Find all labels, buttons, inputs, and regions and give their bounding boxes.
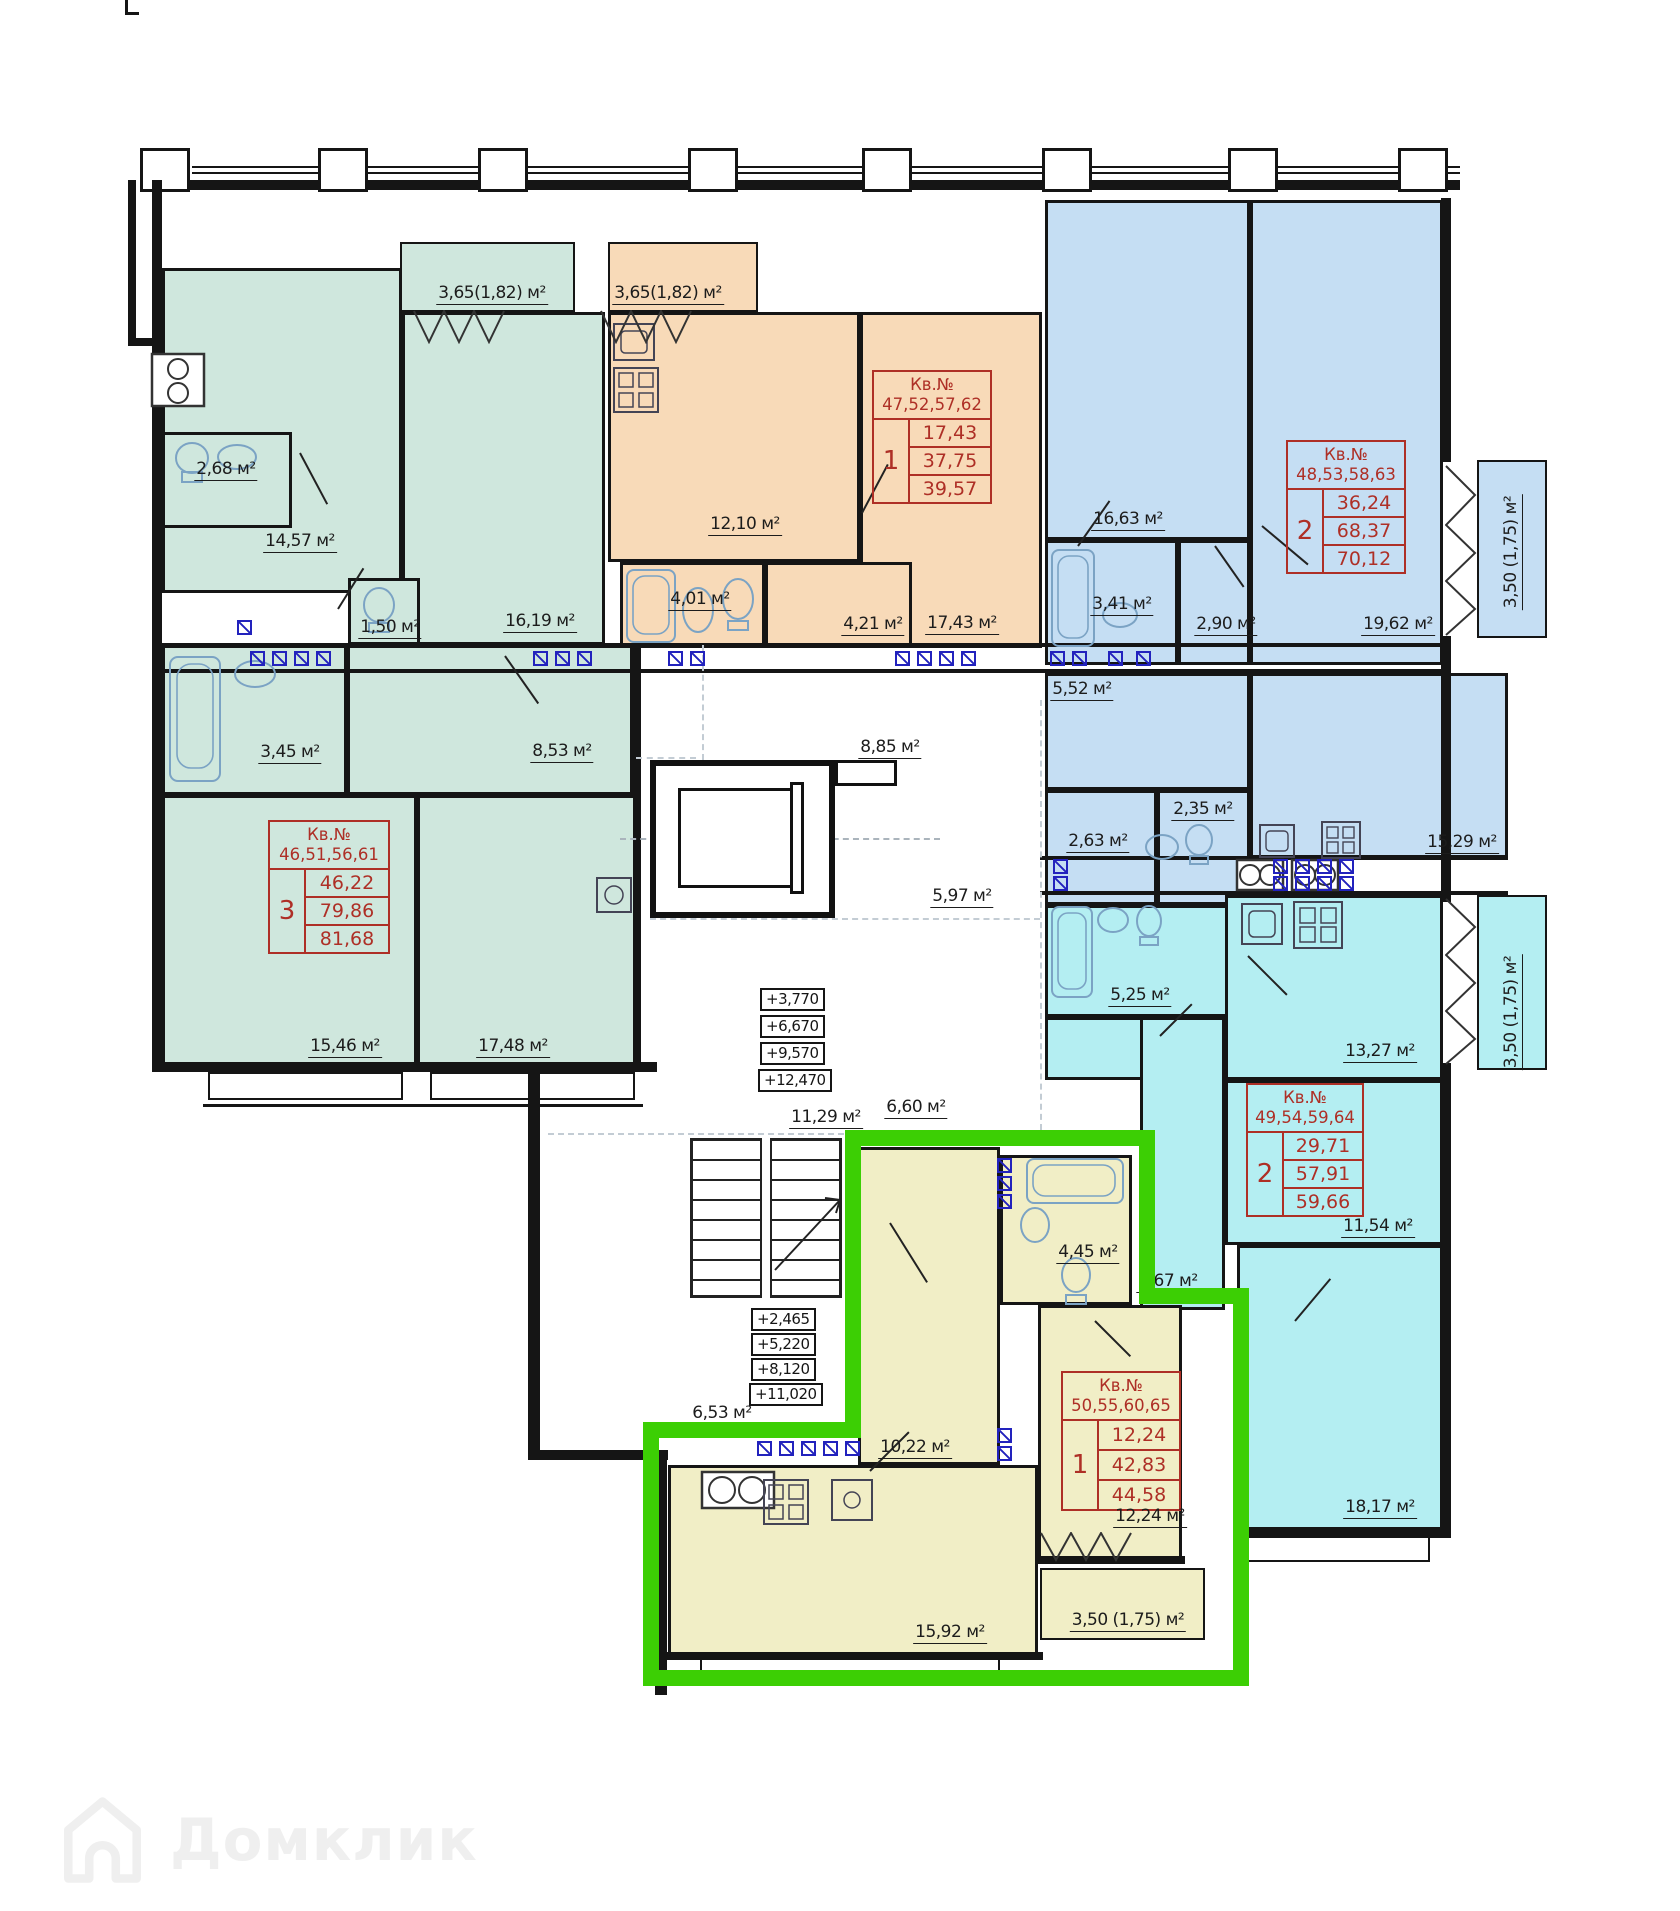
- area-apartment: 42,83: [1099, 1451, 1179, 1481]
- room-area-label: 5,52 м²: [1050, 679, 1113, 701]
- vent-icon: [294, 651, 309, 666]
- apartment-numbers: 50,55,60,65: [1065, 1396, 1177, 1416]
- vent-icon: [917, 651, 932, 666]
- room-count: 1: [1063, 1421, 1099, 1509]
- room-area-label: 11,54 м²: [1341, 1216, 1415, 1238]
- bathtub-icon: [1050, 905, 1094, 999]
- vent-icon: [1053, 859, 1068, 874]
- area-apartment: 79,86: [306, 898, 388, 926]
- area-total: 59,66: [1284, 1189, 1362, 1215]
- pillar: [1228, 148, 1278, 192]
- vent-icon: [997, 1176, 1012, 1191]
- room-area-label: 10,22 м²: [878, 1437, 952, 1459]
- apartment-numbers: 49,54,59,64: [1250, 1108, 1360, 1128]
- vent-icon: [1050, 651, 1065, 666]
- area-apartment: 57,91: [1284, 1161, 1362, 1189]
- elevation-mark: +2,465: [751, 1308, 816, 1331]
- room-blue-bedroom: [1045, 200, 1250, 540]
- vent-icon: [757, 1441, 772, 1456]
- wall-right: [1441, 198, 1451, 462]
- vent-icon: [997, 1428, 1012, 1443]
- balcony-window-icon: [1040, 1532, 1132, 1562]
- vent-icon: [823, 1441, 838, 1456]
- vent-icon: [997, 1446, 1012, 1461]
- elevator-cab: [678, 788, 796, 888]
- wall: [128, 338, 162, 346]
- elevator-counterweight: [835, 760, 897, 786]
- room-area-label: 14,57 м²: [263, 531, 337, 553]
- room-area-label: 8,53 м²: [530, 741, 593, 763]
- wall-corridor-top: [162, 643, 1443, 647]
- elevation-mark: +6,670: [760, 1015, 825, 1038]
- sink-icon: [1095, 905, 1131, 935]
- kv-label: Кв.№: [876, 375, 988, 395]
- sink-icon: [1018, 1205, 1052, 1245]
- vent-icon: [779, 1441, 794, 1456]
- hob-icon: [1292, 900, 1344, 950]
- vent-icon: [1339, 876, 1354, 891]
- highlight-outline-right-lower: [1233, 1288, 1249, 1686]
- stove-icon: [150, 352, 206, 408]
- highlight-outline-top: [845, 1130, 1155, 1146]
- kv-label: Кв.№: [272, 825, 386, 845]
- vent-icon: [272, 651, 287, 666]
- room-area-label: 12,10 м²: [708, 514, 782, 536]
- wall-green-bottom: [152, 1062, 657, 1072]
- room-area-label: 16,63 м²: [1091, 509, 1165, 531]
- room-area-label: 11,29 м²: [789, 1107, 863, 1129]
- vent-icon: [1053, 876, 1068, 891]
- room-green-living2: [417, 795, 640, 1070]
- wall-left: [152, 180, 162, 1070]
- highlight-outline-bottom: [643, 1670, 1249, 1686]
- wall: [203, 1104, 643, 1107]
- area-apartment: 37,75: [910, 448, 990, 476]
- toilet-icon: [1182, 822, 1216, 868]
- room-area-label: 4,21 м²: [841, 614, 904, 636]
- bathtub-icon: [1050, 548, 1096, 648]
- elevation-mark: +3,770: [760, 988, 825, 1011]
- wall-stair-left: [528, 1074, 540, 1460]
- room-yellow-bedroom: [858, 1147, 1000, 1465]
- room-area-label: 17,48 м²: [476, 1036, 550, 1058]
- wall: [128, 180, 136, 345]
- room-blue-living: [1250, 200, 1443, 665]
- apartment-numbers: 48,53,58,63: [1290, 465, 1402, 485]
- room-green-hall: [347, 645, 633, 795]
- washing-machine-icon: [595, 876, 633, 914]
- area-total: 70,12: [1324, 546, 1404, 572]
- apartment-numbers: 47,52,57,62: [876, 395, 988, 415]
- room-area-label: 2,35 м²: [1171, 799, 1234, 821]
- room-area-label: 18,17 м²: [1343, 1497, 1417, 1519]
- sink-icon: [1143, 832, 1181, 862]
- vent-icon: [237, 620, 252, 635]
- pillar: [862, 148, 912, 192]
- room-area-label: 5,25 м²: [1108, 985, 1171, 1007]
- vent-icon: [1317, 859, 1332, 874]
- pillar: [140, 148, 190, 192]
- pillar: [688, 148, 738, 192]
- room-area-label: 4,45 м²: [1056, 1242, 1119, 1264]
- area-living: 46,22: [306, 870, 388, 898]
- highlight-outline-left-lower: [643, 1422, 659, 1686]
- balcony-window-icon: [600, 310, 692, 344]
- room-cyan-living: [1237, 1245, 1443, 1530]
- hob-icon: [1320, 820, 1362, 860]
- wall-corridor-west: [633, 645, 641, 1070]
- elevator-door: [790, 782, 804, 894]
- vent-icon: [577, 651, 592, 666]
- kv-label: Кв.№: [1290, 445, 1402, 465]
- vent-icon: [250, 651, 265, 666]
- vent-icon: [1339, 859, 1354, 874]
- vent-icon: [801, 1441, 816, 1456]
- room-area-label: 8,85 м²: [858, 737, 921, 759]
- bathtub-icon: [1025, 1157, 1125, 1205]
- hob-icon: [762, 1478, 810, 1526]
- apartment-table-cyan: Кв.№49,54,59,64 2 29,7157,9159,66: [1246, 1083, 1364, 1217]
- watermark-label: Домклик: [170, 1806, 478, 1874]
- pillar: [318, 148, 368, 192]
- guide-line: [636, 757, 696, 759]
- vent-icon: [1273, 859, 1288, 874]
- vent-icon: [895, 651, 910, 666]
- room-area-label: 3,50 (1,75) м²: [1501, 954, 1523, 1070]
- apartment-table-orange: Кв.№47,52,57,62 1 17,4337,7539,57: [872, 370, 992, 504]
- room-area-label: 2,63 м²: [1066, 831, 1129, 853]
- area-living: 36,24: [1324, 490, 1404, 518]
- kitchen-sink-icon: [1240, 902, 1284, 946]
- area-living: 17,43: [910, 420, 990, 448]
- room-count: 1: [874, 420, 910, 502]
- room-area-label: 15,92 м²: [913, 1622, 987, 1644]
- area-total: 39,57: [910, 476, 990, 502]
- room-area-label: 3,65(1,82) м²: [436, 283, 548, 305]
- pillar: [1398, 148, 1448, 192]
- area-living: 29,71: [1284, 1133, 1362, 1161]
- wall-corridor-bottom: [162, 669, 1443, 673]
- room-area-label: 6,60 м²: [884, 1097, 947, 1119]
- pillar: [1042, 148, 1092, 192]
- room-area-label: 19,62 м²: [1361, 614, 1435, 636]
- kv-label: Кв.№: [1065, 1376, 1177, 1396]
- elevation-mark: +11,020: [749, 1383, 823, 1406]
- kitchen-sink-icon: [1258, 823, 1296, 859]
- elevation-mark: +9,570: [760, 1042, 825, 1065]
- vent-icon: [533, 651, 548, 666]
- vent-icon: [939, 651, 954, 666]
- room-area-label: 15,29 м²: [1425, 832, 1499, 854]
- vent-icon: [1273, 876, 1288, 891]
- room-area-label: 1,50 м²: [358, 617, 421, 639]
- hob-icon: [612, 366, 660, 414]
- highlight-outline-step-left: [643, 1422, 861, 1438]
- vent-icon: [668, 651, 683, 666]
- guide-line: [650, 918, 1040, 920]
- apartment-table-yellow: Кв.№50,55,60,65 1 12,2442,8344,58: [1061, 1371, 1181, 1511]
- room-area-label: 15,46 м²: [308, 1036, 382, 1058]
- vent-icon: [1295, 876, 1310, 891]
- area-apartment: 68,37: [1324, 518, 1404, 546]
- room-area-label: 3,50 (1,75) м²: [1501, 494, 1523, 610]
- room-area-label: 3,45 м²: [258, 742, 321, 764]
- vent-icon: [997, 1194, 1012, 1209]
- room-area-label: 17,43 м²: [925, 613, 999, 635]
- vent-icon: [845, 1441, 860, 1456]
- vent-icon: [690, 651, 705, 666]
- room-area-label: 3,65(1,82) м²: [612, 283, 724, 305]
- window-sill: [1245, 1536, 1430, 1562]
- guide-line: [548, 1133, 844, 1135]
- apartment-table-blue: Кв.№48,53,58,63 2 36,2468,3770,12: [1286, 440, 1406, 574]
- highlight-outline-step-right: [1139, 1288, 1249, 1304]
- room-area-label: 2,90 м²: [1194, 614, 1257, 636]
- room-area-label: 12,24 м²: [1113, 1506, 1187, 1528]
- bathtub-icon: [168, 655, 222, 783]
- window-sill: [208, 1072, 403, 1100]
- room-green-bedroom2: [402, 312, 605, 645]
- elevation-mark: +12,470: [758, 1069, 832, 1092]
- vent-icon: [1136, 651, 1151, 666]
- vent-icon: [555, 651, 570, 666]
- vent-icon: [316, 651, 331, 666]
- apartment-numbers: 46,51,56,61: [272, 845, 386, 865]
- room-area-label: 16,19 м²: [503, 611, 577, 633]
- area-total: 44,58: [1099, 1481, 1179, 1509]
- highlight-outline-right-upper: [1139, 1130, 1155, 1304]
- toilet-icon: [1133, 903, 1165, 949]
- area-total: 81,68: [306, 926, 388, 952]
- room-area-label: 4,01 м²: [668, 589, 731, 611]
- vent-icon: [1317, 876, 1332, 891]
- balcony-window-icon: [413, 310, 505, 344]
- room-area-label: 5,97 м²: [930, 886, 993, 908]
- room-area-label: 3,41 м²: [1090, 594, 1153, 616]
- room-area-label: 2,68 м²: [194, 459, 257, 481]
- area-living: 12,24: [1099, 1421, 1179, 1451]
- vent-icon: [1108, 651, 1123, 666]
- room-area-label: 13,27 м²: [1343, 1041, 1417, 1063]
- wall-right: [1441, 1063, 1451, 1538]
- vent-icon: [961, 651, 976, 666]
- kv-label: Кв.№: [1250, 1088, 1360, 1108]
- balcony-window-icon: [1445, 465, 1477, 637]
- wall-right: [1441, 636, 1451, 902]
- wall: [125, 12, 139, 15]
- vent-icon: [1295, 859, 1310, 874]
- kitchen-sink-icon: [830, 1478, 874, 1522]
- apartment-table-green: Кв.№46,51,56,61 3 46,2279,8681,68: [268, 820, 390, 954]
- stair-arrow-icon: [770, 1180, 850, 1280]
- vent-icon: [997, 1158, 1012, 1173]
- room-count: 2: [1248, 1133, 1284, 1215]
- vent-icon: [1072, 651, 1087, 666]
- guide-line: [1040, 700, 1042, 1130]
- elevation-mark: +8,120: [751, 1358, 816, 1381]
- pillar: [478, 148, 528, 192]
- room-area-label: 3,50 (1,75) м²: [1070, 1610, 1186, 1632]
- floor-plan: Кв.№46,51,56,61 3 46,2279,8681,68 Кв.№47…: [0, 0, 1680, 1911]
- highlight-outline-left-upper: [845, 1130, 861, 1436]
- room-count: 2: [1288, 490, 1324, 572]
- balcony-window-icon: [1445, 898, 1477, 1066]
- domclick-house-icon: [55, 1790, 150, 1890]
- room-count: 3: [270, 870, 306, 952]
- watermark: Домклик: [55, 1790, 478, 1890]
- elevation-mark: +5,220: [751, 1333, 816, 1356]
